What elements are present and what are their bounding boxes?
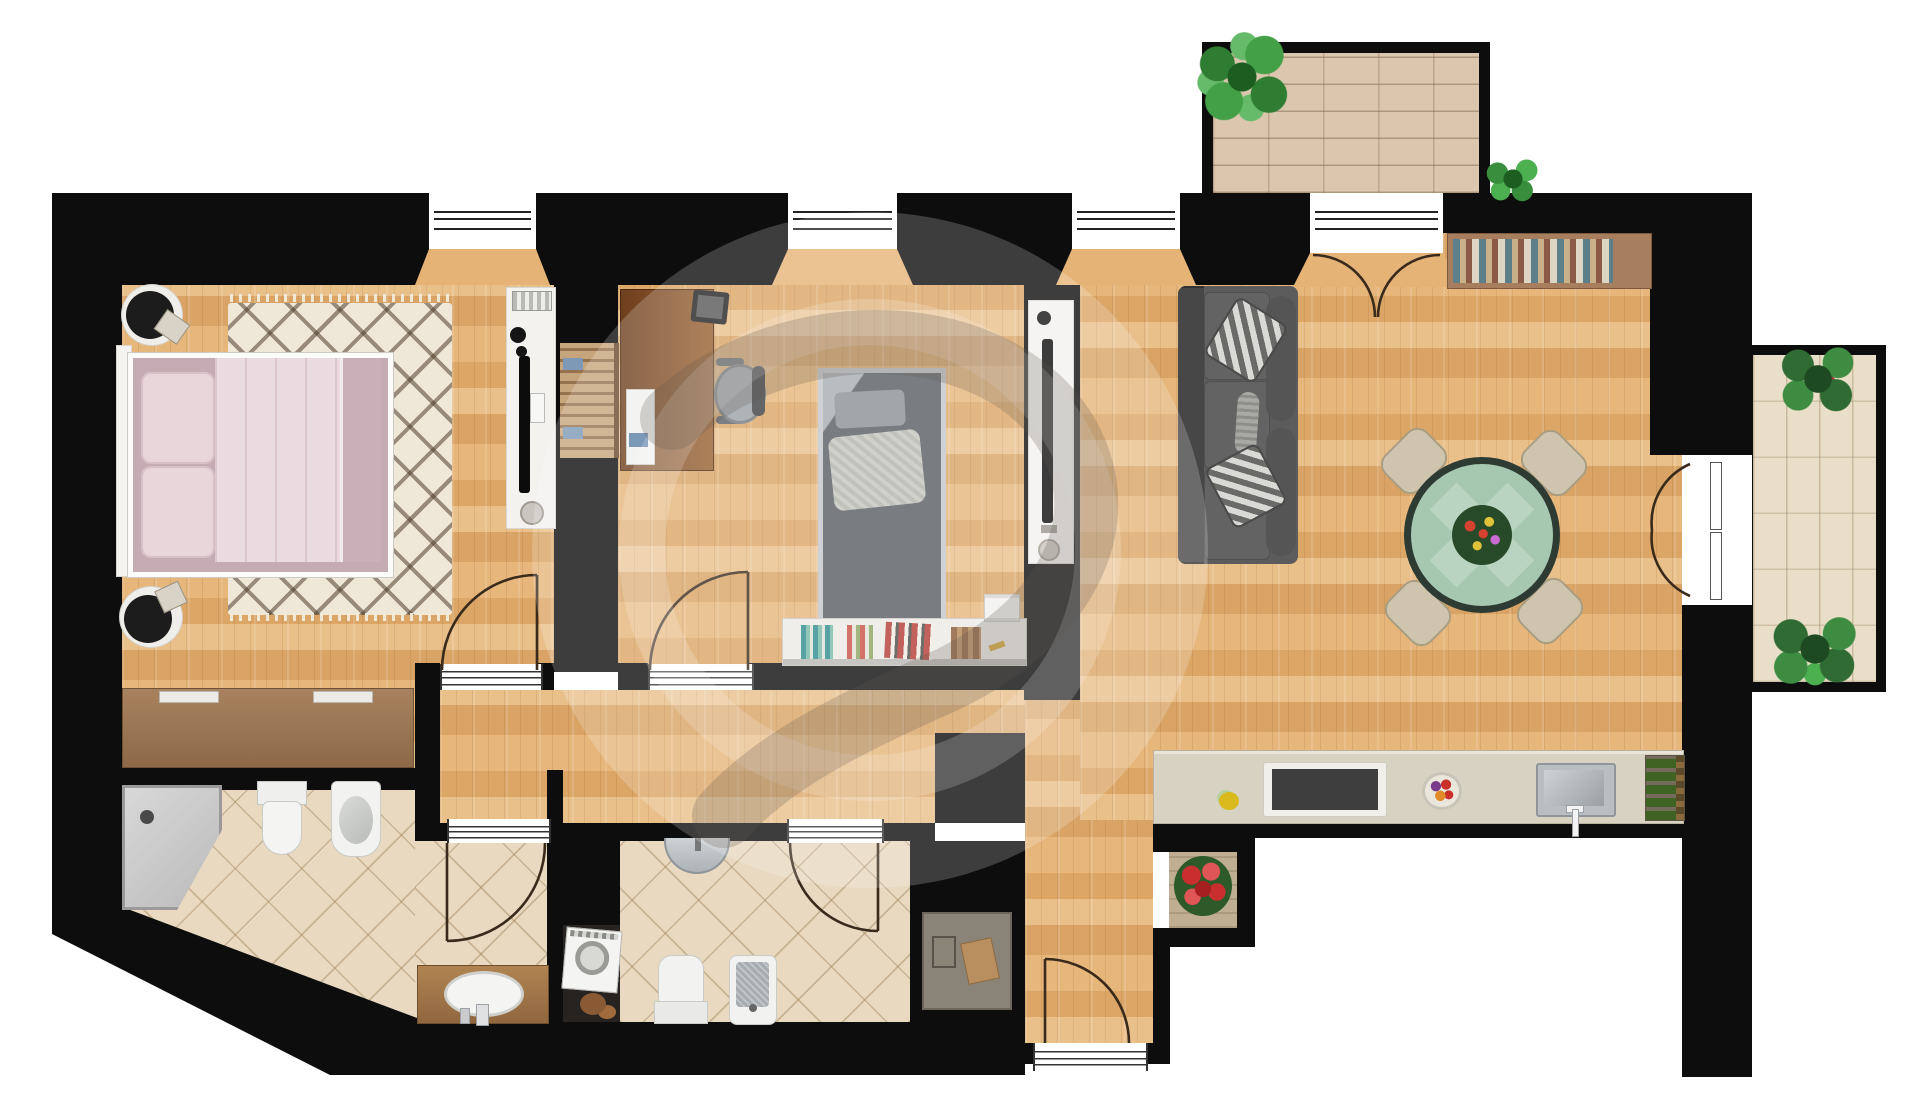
- shower-tray: [729, 955, 777, 1025]
- balcony-plant-bottom: [1760, 604, 1870, 694]
- nightstand: [120, 587, 182, 647]
- left-wall: [52, 193, 122, 912]
- office-chair: [708, 356, 766, 428]
- rug-fringe-top: [230, 294, 450, 302]
- vanity-faucet: [476, 1004, 489, 1026]
- bed2-knit-pillow: [827, 428, 926, 511]
- bedroom-dresser: [122, 688, 414, 768]
- bed-pillow: [141, 372, 215, 464]
- chair-back: [752, 366, 765, 416]
- bidet-basin: [339, 796, 373, 844]
- speaker-dot: [510, 327, 526, 343]
- toilet-bowl: [658, 955, 704, 1007]
- bath-vanity: [417, 965, 549, 1024]
- workspace-desk: [922, 912, 1012, 1010]
- toilet-base: [654, 1001, 708, 1024]
- bidet: [331, 781, 381, 857]
- washer-drum: [574, 940, 611, 977]
- entrance-door-threshold: [1033, 1043, 1148, 1071]
- top-wall-segment-e: [1443, 193, 1682, 233]
- kitchen-sink: [1536, 763, 1616, 817]
- terrace-plant-large: [1186, 22, 1298, 132]
- documents: [960, 937, 1000, 985]
- round-speaker: [520, 501, 544, 525]
- storage-box: [984, 594, 1020, 622]
- hall-bottom-wall-a: [440, 823, 447, 841]
- flower-plant: [1174, 856, 1232, 916]
- bookshelf: [782, 618, 1027, 666]
- living-window: [1072, 196, 1180, 249]
- shower-floor: [736, 962, 769, 1007]
- sofa: [1178, 286, 1298, 564]
- master-bedroom-door-threshold: [440, 664, 543, 690]
- round-dining-table: [1404, 457, 1560, 613]
- cooktop: [1263, 762, 1387, 817]
- bedroom2-door-threshold: [648, 664, 754, 690]
- books: [801, 625, 833, 659]
- living-room-floor: [1080, 233, 1682, 820]
- bedroom-tv-panel: [506, 287, 556, 529]
- bedroom2-bottom-wall-b: [748, 663, 1025, 690]
- flower-centerpiece: [1452, 505, 1512, 565]
- terrace-plant-small: [1482, 150, 1544, 208]
- door-glazing: [1315, 211, 1438, 230]
- folded-clothes: [563, 427, 583, 439]
- toilet-bowl: [262, 801, 302, 855]
- bedroom2-bottom-wall-a: [618, 663, 648, 690]
- dresser-item: [313, 691, 373, 703]
- bed2-pillow: [834, 389, 906, 429]
- top-wall-segment-d: [1180, 193, 1310, 285]
- media-item: [1041, 525, 1057, 533]
- shower-drain: [140, 810, 154, 824]
- speaker-dot: [1037, 311, 1051, 325]
- washing-machine: [561, 927, 622, 994]
- single-bed: [818, 368, 946, 625]
- living-wall-bookshelf: [1447, 233, 1652, 289]
- bathroom1-door-threshold: [447, 819, 551, 843]
- bath1-right-wall: [547, 770, 563, 1022]
- sink-basin: [1544, 770, 1604, 806]
- media-box: [530, 393, 545, 423]
- laptop: [690, 289, 729, 325]
- alcove-bottom-wall: [1153, 928, 1255, 947]
- window-glazing: [1077, 211, 1175, 230]
- floor-plan-canvas: [0, 0, 1920, 1114]
- books: [884, 622, 934, 660]
- balcony-door-leaf-top: [1710, 462, 1722, 530]
- books: [1453, 239, 1613, 283]
- sink-faucet: [695, 838, 701, 851]
- window-glazing: [434, 211, 531, 230]
- laptop-screen: [696, 295, 724, 320]
- tv-bar: [1042, 339, 1053, 523]
- bathroom2-door-threshold: [787, 819, 884, 843]
- pen: [988, 640, 1005, 651]
- living-tv-panel: [1028, 300, 1074, 564]
- dresser-item: [159, 691, 219, 703]
- tv-bar: [519, 356, 530, 493]
- hall-bottom-wall-c: [878, 823, 935, 841]
- wine-rack: [1645, 755, 1685, 821]
- washer-niche-top-wall: [563, 841, 620, 925]
- vanity-faucet-knob: [460, 1008, 470, 1024]
- cooktop-glass: [1272, 769, 1378, 810]
- balcony-plant-top: [1768, 334, 1868, 424]
- washer-panel: [570, 930, 618, 940]
- toilet: [257, 781, 305, 855]
- bed-side-fold: [340, 358, 381, 562]
- double-bed: [128, 353, 393, 577]
- fruit-bowl: [1422, 772, 1462, 810]
- toilet: [654, 955, 706, 1023]
- kitchen-counter: [1153, 750, 1684, 824]
- balcony-door-leaf-bottom: [1710, 532, 1722, 600]
- folded-clothes: [563, 358, 583, 370]
- sink-faucet-stem: [1572, 809, 1579, 837]
- bed-duvet: [215, 358, 340, 562]
- laundry-basket: [580, 993, 606, 1015]
- shower-drain: [749, 1004, 757, 1012]
- wall-radiator: [512, 291, 552, 311]
- bottom-wall-band: [417, 1022, 1025, 1075]
- bedroom-window: [429, 196, 536, 249]
- nightstand: [122, 285, 182, 345]
- alcove-right-wall: [1237, 852, 1255, 928]
- bedroom-closet-wall: [554, 253, 618, 672]
- sofa-backrest: [1178, 286, 1204, 564]
- right-wall: [1682, 600, 1752, 1077]
- window-glazing: [793, 211, 892, 230]
- built-in-wardrobe: [560, 343, 619, 458]
- terrace-french-door: [1310, 196, 1443, 253]
- bedroom2-window: [788, 196, 897, 249]
- hall-step-wall: [935, 733, 1025, 823]
- rug-fringe-bottom: [230, 613, 450, 621]
- bed-pillow: [141, 466, 215, 558]
- round-speaker: [1038, 539, 1060, 561]
- bedroom-hall-divider: [415, 663, 440, 841]
- bottle-caps: [1676, 756, 1684, 820]
- desk-chair-outline: [932, 936, 956, 968]
- books: [951, 627, 981, 659]
- corridor-right-wall: [1153, 928, 1170, 1064]
- lemon: [1219, 792, 1239, 810]
- notepad-stripe: [629, 433, 648, 447]
- notepad: [626, 389, 655, 465]
- top-right-corner-wall: [1650, 193, 1752, 455]
- books: [847, 625, 873, 659]
